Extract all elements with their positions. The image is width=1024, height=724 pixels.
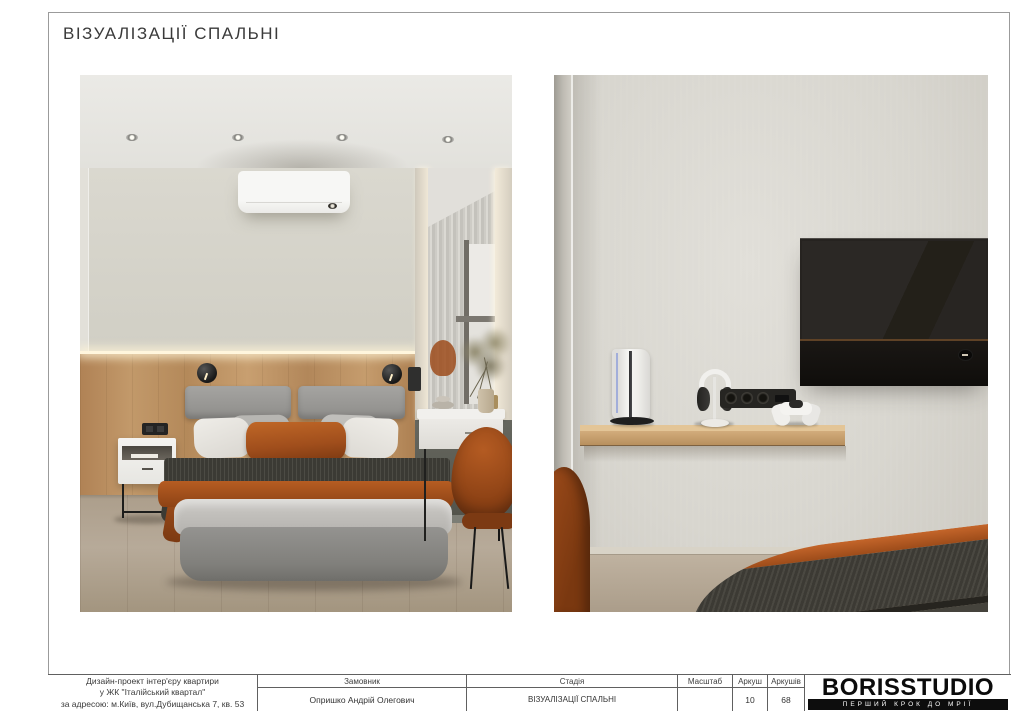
ceiling-spotlight xyxy=(126,134,138,141)
book xyxy=(131,454,158,458)
page-title: ВІЗУАЛІЗАЦІЇ СПАЛЬНІ xyxy=(63,24,280,44)
socket-outlet xyxy=(725,392,737,404)
desk-chair-seat xyxy=(462,513,512,529)
render-tv-wall-view xyxy=(554,75,988,612)
tv xyxy=(800,238,988,385)
stage-value: ВІЗУАЛІЗАЦІЇ СПАЛЬНІ xyxy=(467,688,677,711)
project-info-line: Дизайн-проект інтер'єру квартири xyxy=(86,676,219,688)
led-strip xyxy=(80,351,415,354)
client-cell: Замовник Опришко Андрій Олегович xyxy=(258,675,467,711)
pillow-white xyxy=(341,417,398,459)
desk-bowl xyxy=(436,396,450,402)
desk-bowl xyxy=(432,401,454,409)
wall-corner-strip xyxy=(80,168,89,354)
sconce-light xyxy=(204,373,208,380)
project-info-cell: Дизайн-проект інтер'єру квартири у ЖК "І… xyxy=(48,675,258,711)
desk-leg xyxy=(424,449,426,541)
pillow-accent-rust xyxy=(246,422,346,460)
bed-base xyxy=(180,527,448,581)
controller-touchpad xyxy=(789,400,803,408)
stage-cell: Стадія ВІЗУАЛІЗАЦІЇ СПАЛЬНІ xyxy=(467,675,678,711)
ceiling-shadow xyxy=(195,139,410,168)
sheets-label: Аркушів xyxy=(768,675,804,688)
wall-sconce xyxy=(197,363,217,383)
sheet-number-cell: Аркуш 10 xyxy=(733,675,768,711)
scale-cell: Масштаб xyxy=(678,675,733,711)
console-blue-accent xyxy=(616,353,618,413)
dried-plant xyxy=(458,327,512,413)
project-info-line: у ЖК "Італійський квартал" xyxy=(100,687,205,699)
client-value: Опришко Андрій Олегович xyxy=(258,688,466,711)
mirror-reflected-chair xyxy=(430,340,456,376)
nightstand-drawer-handle xyxy=(142,468,153,470)
sheet-value: 10 xyxy=(733,688,767,711)
tv-soundbar xyxy=(800,341,988,386)
title-block: Дизайн-проект інтер'єру квартири у ЖК "І… xyxy=(48,674,1011,711)
plant-vase xyxy=(478,389,494,413)
tv-button-light xyxy=(962,354,968,356)
tv-screen-reflection xyxy=(802,241,986,339)
tv-power-button xyxy=(958,349,973,361)
socket-switch xyxy=(157,426,164,432)
headphones-earcup xyxy=(695,387,710,411)
stage-label: Стадія xyxy=(467,675,677,688)
render-bed-wall-view xyxy=(80,75,512,612)
socket-above-nightstand xyxy=(142,423,168,435)
sheets-total-cell: Аркушів 68 xyxy=(768,675,805,711)
studio-logo-name: BORISSTUDIO xyxy=(822,677,994,699)
console-stand xyxy=(610,417,654,425)
sheet-label: Аркуш xyxy=(733,675,767,688)
sheets-value: 68 xyxy=(768,688,804,711)
socket-outlet xyxy=(757,392,769,404)
pillow-white xyxy=(193,417,250,459)
shelf-front xyxy=(580,431,845,446)
ceiling-spotlight xyxy=(336,134,348,141)
game-console xyxy=(610,347,654,425)
air-conditioner xyxy=(238,171,350,213)
ac-status-led xyxy=(328,203,337,209)
plant-foliage xyxy=(472,351,508,381)
console-seam xyxy=(629,351,632,417)
scale-value xyxy=(678,688,732,711)
sconce-light xyxy=(389,374,393,381)
wall-sconce xyxy=(382,364,402,384)
wall-switch-panel xyxy=(408,367,421,391)
socket-outlet xyxy=(741,392,753,404)
ac-vent-line xyxy=(246,202,342,203)
game-controller xyxy=(773,400,819,426)
project-info-line: за адресою: м.Київ, вул.Дубищанська 7, к… xyxy=(61,699,244,711)
socket-switch xyxy=(146,426,153,432)
stand-base xyxy=(701,419,729,427)
mirror-window-pane xyxy=(469,244,495,316)
ceiling-spotlight xyxy=(232,134,244,141)
ceiling-spotlight xyxy=(442,136,454,143)
client-label: Замовник xyxy=(258,675,466,688)
shelf-shadow xyxy=(584,446,846,462)
studio-logo: BORISSTUDIO ПЕРШИЙ КРОК ДО МРІЇ xyxy=(805,675,1011,711)
studio-logo-tagline: ПЕРШИЙ КРОК ДО МРІЇ xyxy=(808,699,1008,710)
scale-label: Масштаб xyxy=(678,675,732,688)
